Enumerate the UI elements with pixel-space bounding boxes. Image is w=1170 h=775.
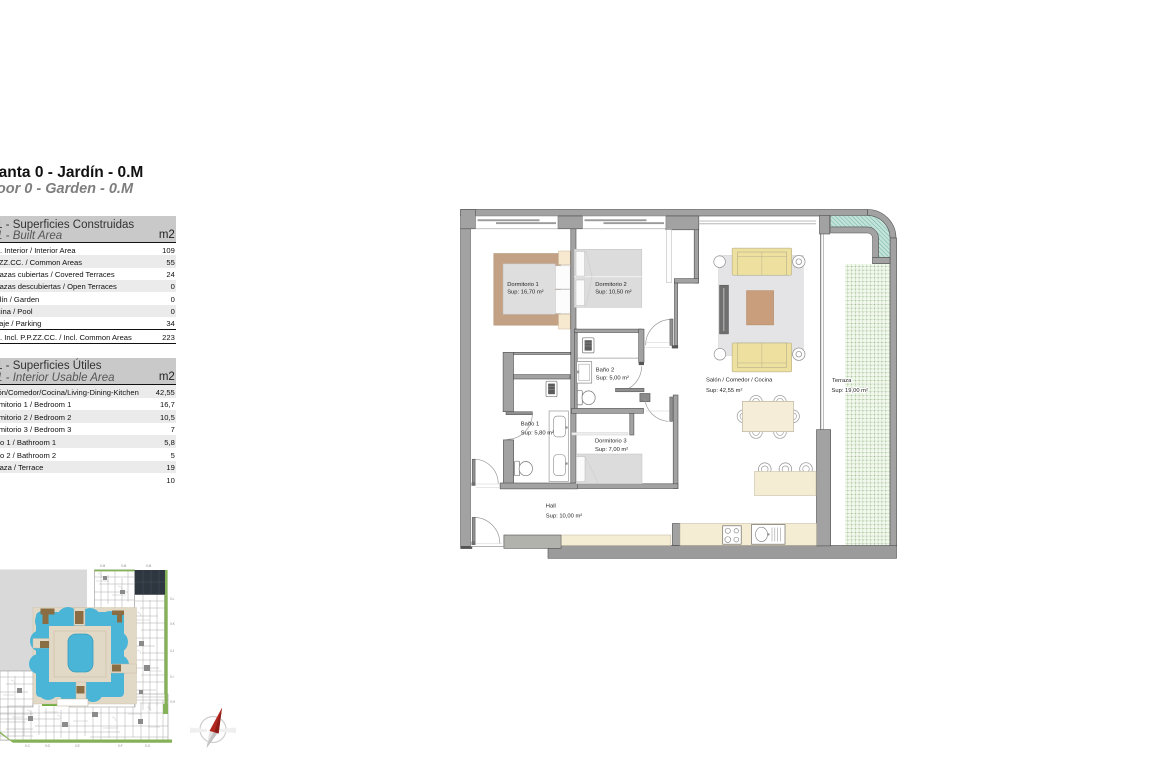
- svg-text:0.J: 0.J: [170, 649, 175, 653]
- svg-text:Sup: 5,80 m²: Sup: 5,80 m²: [521, 430, 554, 436]
- svg-text:Salón / Comedor / Cocina: Salón / Comedor / Cocina: [706, 377, 773, 383]
- svg-text:Sup: 42,55 m²: Sup: 42,55 m²: [706, 388, 742, 394]
- svg-text:0.M: 0.M: [146, 564, 152, 568]
- svg-text:0.C: 0.C: [25, 744, 31, 748]
- svg-text:Sup: 7,00 m²: Sup: 7,00 m²: [595, 447, 628, 453]
- svg-text:Dormitorio 1: Dormitorio 1: [507, 282, 539, 288]
- svg-text:0.I: 0.I: [170, 675, 174, 679]
- svg-text:0.F: 0.F: [118, 744, 123, 748]
- svg-text:Dormitorio 2: Dormitorio 2: [595, 282, 627, 288]
- svg-text:Sup: 19,00 m²: Sup: 19,00 m²: [832, 388, 868, 394]
- svg-text:0.H: 0.H: [170, 700, 176, 704]
- svg-text:Baño 2: Baño 2: [596, 367, 614, 373]
- svg-text:0.L: 0.L: [170, 597, 175, 601]
- svg-text:Terraza: Terraza: [832, 378, 852, 384]
- svg-text:0.M: 0.M: [121, 564, 127, 568]
- svg-text:Sup: 16,70 m²: Sup: 16,70 m²: [507, 289, 543, 295]
- svg-text:Dormitorio 3: Dormitorio 3: [595, 439, 627, 445]
- svg-text:Sup: 10,00 m²: Sup: 10,00 m²: [546, 514, 582, 520]
- svg-text:0.D: 0.D: [45, 744, 51, 748]
- svg-text:Hall: Hall: [546, 504, 556, 510]
- svg-text:0.K: 0.K: [170, 622, 176, 626]
- svg-text:Sup: 5,00 m²: Sup: 5,00 m²: [596, 376, 629, 382]
- svg-text:Baño 1: Baño 1: [521, 421, 539, 427]
- svg-text:0.G: 0.G: [145, 744, 151, 748]
- svg-text:Sup: 10,50 m²: Sup: 10,50 m²: [595, 289, 631, 295]
- svg-text:0.E: 0.E: [75, 744, 80, 748]
- svg-text:0.M: 0.M: [100, 564, 106, 568]
